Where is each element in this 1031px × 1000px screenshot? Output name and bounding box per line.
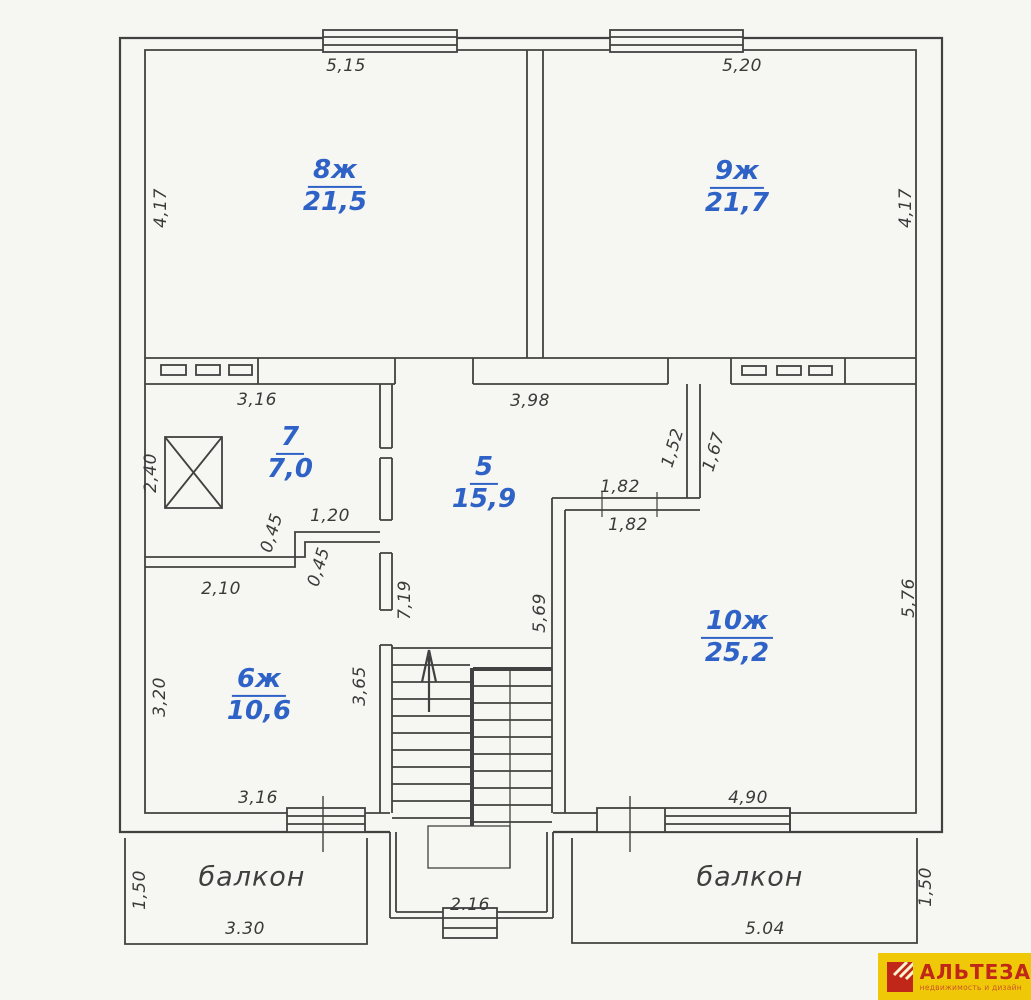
dim-room6-right-height: 3,65 — [350, 666, 370, 706]
logo-title: АЛЬТЕЗА — [920, 962, 1031, 982]
room-label-8: 8ж 21,5 — [303, 156, 367, 216]
vent-shaft-box — [165, 437, 222, 508]
room-5-area: 15,9 — [452, 485, 516, 514]
dim-stairbay-width: 2.16 — [450, 895, 490, 915]
dim-210: 2,10 — [201, 579, 241, 599]
room-label-6: 6ж 10,6 — [227, 665, 291, 725]
floor-plan-scan: 8ж 21,5 9ж 21,7 7 7,0 5 15,9 6ж 10,6 10ж… — [0, 0, 1031, 1000]
dim-balcony-left-width: 3.30 — [225, 919, 265, 939]
room-9-number: 9ж — [710, 157, 764, 189]
dim-room5-width: 3,98 — [510, 391, 550, 411]
stair-bay — [390, 832, 553, 938]
dim-corridor-height: 7,19 — [395, 580, 415, 620]
room-10-number: 10ж — [701, 607, 773, 639]
balcony-right-label: балкон — [697, 862, 804, 893]
dim-balcony-right-width: 5.04 — [745, 919, 785, 939]
dim-balcony-right-height: 1,50 — [916, 867, 936, 907]
logo-text: АЛЬТЕЗА недвижимость и дизайн — [920, 962, 1031, 992]
logo-tagline: недвижимость и дизайн — [920, 984, 1031, 992]
room-9-area: 21,7 — [705, 189, 769, 218]
room-label-5: 5 15,9 — [452, 453, 516, 513]
dim-room8-width: 5,15 — [326, 56, 366, 76]
room-6-area: 10,6 — [227, 697, 291, 726]
alteza-logo: АЛЬТЕЗА недвижимость и дизайн — [878, 953, 1031, 1000]
stairs-up-arrow — [422, 650, 436, 712]
room-7-area: 7,0 — [267, 455, 313, 484]
room-7-number: 7 — [276, 423, 304, 455]
dim-room9-width: 5,20 — [722, 56, 762, 76]
middle-wall-band — [145, 358, 916, 384]
dim-room10-right-height: 5,76 — [899, 578, 919, 618]
room-label-7: 7 7,0 — [267, 423, 313, 483]
dim-182-b: 1,82 — [608, 515, 648, 535]
room-label-10: 10ж 25,2 — [701, 607, 773, 667]
balcony-left-label: балкон — [199, 862, 306, 893]
dim-room10-left-height: 5,69 — [530, 593, 550, 633]
room-8-number: 8ж — [308, 156, 362, 188]
room-6-number: 6ж — [232, 665, 286, 697]
staircase — [392, 648, 552, 868]
dim-room8-height: 4,17 — [151, 188, 171, 228]
top-windows — [323, 30, 743, 52]
dim-shaft-height: 2,40 — [141, 453, 161, 493]
dim-room10-width: 4,90 — [728, 788, 768, 808]
alteza-logo-icon — [887, 962, 913, 992]
room-8-area: 21,5 — [303, 188, 367, 217]
room-5-number: 5 — [470, 453, 498, 485]
dim-room6-left-height: 3,20 — [150, 677, 170, 717]
dim-balcony-left-height: 1,50 — [130, 870, 150, 910]
dim-182-a: 1,82 — [600, 477, 640, 497]
dim-room9-height: 4,17 — [896, 188, 916, 228]
room-label-9: 9ж 21,7 — [705, 157, 769, 217]
room-10-area: 25,2 — [701, 639, 773, 668]
partition-room8-room9 — [527, 50, 543, 358]
corridor-wall — [380, 384, 392, 813]
dim-room7-width: 3,16 — [237, 390, 277, 410]
dim-120: 1,20 — [310, 506, 350, 526]
dim-room6-width: 3,16 — [238, 788, 278, 808]
